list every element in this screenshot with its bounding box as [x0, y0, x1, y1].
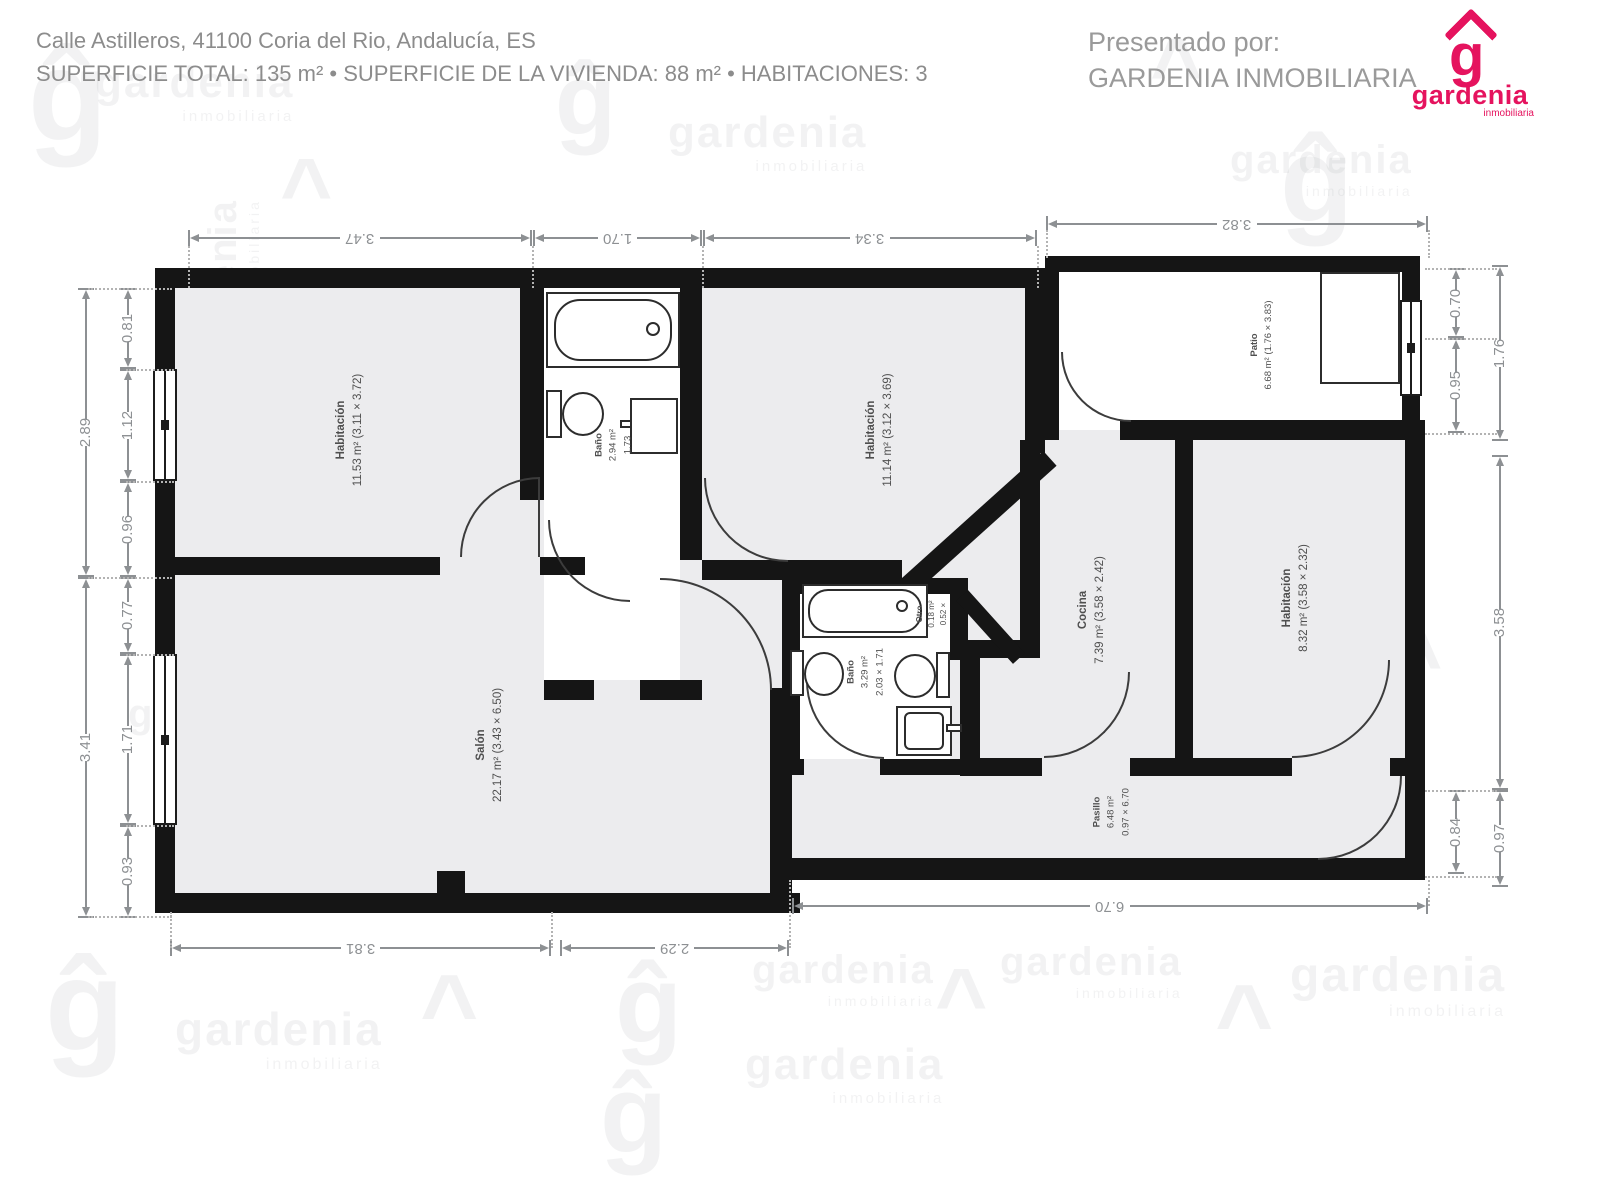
dimension-arrow	[1496, 267, 1504, 276]
dim-top-4: 3.82	[1046, 216, 1428, 232]
room-name: Patio	[1248, 301, 1262, 390]
dimension-line	[127, 836, 129, 858]
plan-detail	[1425, 433, 1497, 435]
wall-segment	[880, 759, 968, 775]
plan-detail	[532, 246, 534, 288]
toilet-icon	[546, 390, 562, 438]
sink-icon	[630, 398, 678, 454]
dimension-line	[1499, 636, 1501, 779]
dim-left-inner-5: 1.71	[120, 654, 136, 825]
dimension-label: 1.12	[115, 410, 142, 439]
wall-segment	[155, 893, 800, 913]
dimension-label: 3.82	[1217, 216, 1256, 233]
plan-detail	[88, 916, 172, 918]
wall-segment	[1405, 440, 1425, 785]
logo-g-icon: g	[1449, 22, 1484, 89]
window-icon	[153, 654, 177, 825]
wall-segment	[1025, 288, 1045, 453]
dimension-arrow	[1452, 327, 1460, 336]
dimension-arrow	[124, 907, 132, 916]
dimension-label: 0.97	[1487, 824, 1514, 853]
wall-segment	[1020, 440, 1040, 650]
dimension-line	[1499, 801, 1501, 825]
dimension-arrow	[562, 944, 571, 952]
dimension-arrow	[1496, 792, 1504, 801]
room-size: 2.03 × 1.71	[873, 648, 887, 696]
wall-segment	[1192, 758, 1292, 776]
dimension-line	[1455, 349, 1457, 372]
room-size: 6.48 m²	[1105, 788, 1119, 836]
dimension-arrow	[521, 234, 530, 242]
toilet-icon	[790, 650, 804, 696]
plan-detail	[88, 577, 172, 579]
room-label-otro: Otro0.18 m²0.52 ×	[914, 600, 950, 627]
dimension-arrow	[1496, 430, 1504, 439]
dimension-line	[127, 342, 129, 358]
dimension-line	[890, 237, 1026, 239]
listing-header: Calle Astilleros, 41100 Coria del Rio, A…	[36, 26, 928, 90]
room-size: 2.94 m²	[607, 429, 621, 461]
sink-basin	[904, 712, 944, 750]
dim-bottom-2: 2.29	[560, 940, 789, 956]
plan-detail	[789, 880, 791, 948]
room-label-cocina: Cocina7.39 m² (3.58 × 2.42)	[1075, 556, 1110, 664]
dimension-arrow	[124, 470, 132, 479]
plan-detail	[1428, 230, 1430, 258]
dimension-arrow	[124, 483, 132, 492]
watermark-roof: ^	[420, 975, 478, 1045]
wall-segment	[155, 557, 440, 575]
wall-segment	[790, 858, 1425, 880]
dimension-line	[1057, 223, 1217, 225]
dimension-label: 3.81	[341, 940, 380, 957]
dimension-arrow	[540, 944, 549, 952]
wall-segment	[1045, 420, 1059, 440]
dimension-line	[1499, 466, 1501, 609]
dimension-line	[127, 753, 129, 814]
watermark-roof: ^	[935, 970, 988, 1033]
dimension-label: 3.41	[73, 733, 100, 762]
plan-detail	[188, 246, 190, 288]
sink-faucet	[946, 724, 962, 732]
room-name: Baño	[593, 429, 607, 461]
dim-left-inner-4: 0.77	[120, 577, 136, 654]
watermark-word: gardeniainmobiliaria	[1290, 948, 1506, 1021]
dim-bottom-3: 6.70	[792, 898, 1428, 914]
wall-segment	[1405, 785, 1425, 880]
dimension-arrow	[124, 358, 132, 367]
dimension-arrow	[1452, 422, 1460, 431]
dim-right-outer-2: 3.58	[1492, 455, 1508, 790]
dimension-arrow	[124, 579, 132, 588]
dimension-line	[571, 947, 655, 949]
dimension-arrow	[82, 907, 90, 916]
presented-by-label: Presentado por:	[1088, 24, 1417, 60]
bidet-bowl	[894, 654, 936, 698]
dimension-line	[1499, 276, 1501, 340]
dim-right-inner-2: 0.95	[1448, 338, 1464, 433]
room-label-bano-1: Baño2.94 m²1.73	[593, 429, 636, 461]
dim-right-inner-1: 0.70	[1448, 268, 1464, 338]
wall-segment	[437, 871, 465, 895]
bathtub-drain	[646, 322, 660, 336]
wall-segment	[1045, 256, 1420, 272]
dimension-line	[1455, 846, 1457, 864]
room-floor	[790, 770, 1040, 870]
gardenia-logo: g gardenia inmobiliaria	[1402, 4, 1538, 122]
room-size: 11.53 m² (3.11 × 3.72)	[350, 374, 367, 486]
room-name: Salón	[473, 688, 490, 802]
dimension-arrow	[1452, 792, 1460, 801]
dimension-line	[714, 237, 850, 239]
dimension-arrow	[82, 290, 90, 299]
plan-detail	[1425, 268, 1497, 270]
watermark-word: gardeniainmobiliaria	[1000, 940, 1183, 1001]
dimension-line	[1499, 852, 1501, 876]
plan-detail	[126, 481, 174, 483]
patio-structure	[1320, 272, 1400, 384]
room-size: 3.29 m²	[859, 648, 873, 696]
dimension-arrow	[1496, 457, 1504, 466]
dimension-line	[380, 947, 540, 949]
plan-detail	[1428, 880, 1430, 906]
dimension-label: 0.81	[115, 314, 142, 343]
plan-detail	[1425, 876, 1497, 878]
room-size: 0.97 × 6.70	[1119, 788, 1133, 836]
dimension-arrow	[1496, 876, 1504, 885]
room-name: Habitación	[333, 374, 350, 486]
dimension-arrow	[1452, 270, 1460, 279]
dimension-line	[127, 629, 129, 643]
dimension-line	[1257, 223, 1417, 225]
dimension-line	[637, 237, 691, 239]
dimension-arrow	[1417, 220, 1426, 228]
dimension-line	[694, 947, 778, 949]
listing-address: Calle Astilleros, 41100 Coria del Rio, A…	[36, 26, 928, 57]
wall-segment	[1130, 758, 1192, 776]
bathtub-drain	[896, 600, 908, 612]
dimension-label: 0.84	[1443, 817, 1470, 846]
watermark-word: gardeniainmobiliaria	[745, 1040, 944, 1107]
agency-name: GARDENIA INMOBILIARIA	[1088, 60, 1417, 96]
watermark-word: gardeniainmobiliaria	[1230, 138, 1413, 199]
watermark-word: gardeniainmobiliaria	[668, 108, 867, 175]
watermark-word: gardeniainmobiliaria	[752, 948, 935, 1009]
dimension-arrow	[1452, 340, 1460, 349]
window-icon	[1400, 300, 1422, 396]
room-name: Otro	[914, 600, 926, 627]
room-name: Habitación	[1279, 544, 1296, 652]
dimension-line	[127, 492, 129, 516]
dimension-arrow	[1048, 220, 1057, 228]
wall-segment	[544, 680, 594, 700]
dim-right-inner-3: 0.84	[1448, 790, 1464, 874]
wall-segment	[950, 578, 968, 660]
wall-segment	[960, 640, 980, 775]
room-name: Baño	[845, 648, 859, 696]
dimension-arrow	[124, 814, 132, 823]
dimension-arrow	[82, 579, 90, 588]
dim-top-3: 3.34	[703, 230, 1037, 246]
dimension-label: 0.96	[115, 514, 142, 543]
room-name: Cocina	[1075, 556, 1092, 664]
listing-summary: SUPERFICIE TOTAL: 135 m² • SUPERFICIE DE…	[36, 57, 928, 90]
dimension-arrow	[691, 234, 700, 242]
dimension-arrow	[124, 566, 132, 575]
wall-segment	[960, 758, 1042, 776]
dim-left-inner-2: 1.12	[120, 369, 136, 481]
dimension-arrow	[82, 566, 90, 575]
dimension-line	[181, 947, 341, 949]
dimension-arrow	[124, 290, 132, 299]
dim-right-outer-1: 1.76	[1492, 265, 1508, 441]
room-label-habitacion-3: Habitación8.32 m² (3.58 × 2.32)	[1279, 544, 1314, 652]
dimension-label: 3.47	[340, 230, 379, 247]
plan-detail	[1425, 338, 1497, 340]
watermark-word: gardeniainmobiliaria	[175, 1002, 383, 1074]
dim-right-outer-3: 0.97	[1492, 790, 1508, 887]
plan-detail	[126, 369, 174, 371]
wall-segment	[1390, 758, 1425, 776]
plan-detail	[126, 654, 174, 656]
dimension-line	[1499, 367, 1501, 431]
plan-detail	[702, 246, 704, 288]
room-label-habitacion-1: Habitación11.53 m² (3.11 × 3.72)	[333, 374, 368, 486]
wall-segment	[1045, 256, 1059, 426]
wall-segment	[155, 268, 1045, 288]
dimension-arrow	[1026, 234, 1035, 242]
sink-faucet	[620, 420, 632, 428]
room-name: Habitación	[863, 373, 880, 486]
dimension-label: 0.95	[1443, 371, 1470, 400]
plan-detail	[126, 825, 174, 827]
dimension-label: 0.77	[115, 601, 142, 630]
dimension-line	[127, 665, 129, 726]
dimension-arrow	[1496, 779, 1504, 788]
watermark-glyph: ĝ	[600, 1060, 667, 1170]
dimension-line	[544, 237, 598, 239]
dimension-arrow	[124, 643, 132, 652]
dimension-label: 0.70	[1443, 288, 1470, 317]
room-label-patio: Patio6.68 m² (1.76 × 3.83)	[1248, 301, 1277, 390]
wall-segment	[702, 560, 902, 580]
wall-segment	[1120, 420, 1425, 440]
dimension-line	[85, 588, 87, 734]
dimension-arrow	[1452, 863, 1460, 872]
dimension-arrow	[794, 902, 803, 910]
dimension-arrow	[1417, 902, 1426, 910]
dimension-line	[380, 237, 521, 239]
dimension-label: 3.34	[850, 230, 889, 247]
room-size: 22.17 m² (3.43 × 6.50)	[490, 688, 507, 802]
dim-top-1: 3.47	[188, 230, 532, 246]
dimension-arrow	[124, 371, 132, 380]
dimension-line	[1130, 905, 1417, 907]
dimension-line	[85, 299, 87, 419]
plan-detail	[161, 735, 169, 745]
dimension-arrow	[705, 234, 714, 242]
dimension-line	[85, 761, 87, 907]
wall-segment	[782, 759, 804, 775]
bidet-icon	[936, 652, 950, 698]
dimension-arrow	[778, 944, 787, 952]
dim-left-inner-1: 0.81	[120, 288, 136, 369]
dimension-label: 1.71	[115, 725, 142, 754]
plan-detail	[1425, 790, 1497, 792]
dimension-line	[127, 885, 129, 907]
dimension-label: 2.89	[73, 418, 100, 447]
dimension-line	[1455, 399, 1457, 422]
plan-detail	[1046, 230, 1048, 258]
dimension-line	[803, 905, 1090, 907]
room-label-pasillo: Pasillo6.48 m²0.97 × 6.70	[1091, 788, 1134, 836]
room-name: Pasillo	[1091, 788, 1105, 836]
room-size: 0.18 m²	[926, 600, 938, 627]
wall-segment	[1402, 256, 1420, 304]
watermark-roof: ^	[280, 160, 333, 223]
dim-top-2: 1.70	[533, 230, 702, 246]
dim-bottom-1: 3.81	[170, 940, 551, 956]
room-size: 11.14 m² (3.12 × 3.69)	[880, 373, 897, 486]
dimension-arrow	[190, 234, 199, 242]
dimension-arrow	[124, 827, 132, 836]
dimension-arrow	[172, 944, 181, 952]
logo-wordmark: gardenia	[1402, 80, 1538, 111]
room-size: 6.68 m² (1.76 × 3.83)	[1262, 301, 1276, 390]
dimension-line	[127, 439, 129, 471]
dimension-line	[127, 543, 129, 567]
plan-detail	[1407, 343, 1415, 353]
floorplan-page: ĝgardeniainmobiliariaĝgardeniainmobiliar…	[0, 0, 1600, 1200]
window-icon	[153, 369, 177, 481]
dimension-line	[1455, 801, 1457, 819]
plan-detail	[1037, 246, 1039, 288]
room-label-salon: Salón22.17 m² (3.43 × 6.50)	[473, 688, 508, 802]
dimension-line	[199, 237, 340, 239]
dimension-label: 1.76	[1487, 338, 1514, 367]
logo-tagline: inmobiliaria	[1483, 108, 1534, 119]
room-size: 1.73	[621, 429, 635, 461]
dim-left-inner-3: 0.96	[120, 481, 136, 577]
watermark-glyph: ĝ	[45, 940, 124, 1070]
dimension-line	[127, 299, 129, 315]
dimension-arrow	[535, 234, 544, 242]
wall-segment	[1175, 440, 1193, 760]
dimension-label: 1.70	[598, 230, 637, 247]
dimension-arrow	[124, 656, 132, 665]
plan-detail	[88, 288, 172, 290]
toilet-bowl	[804, 652, 844, 696]
wall-segment	[520, 288, 544, 500]
presented-by-block: Presentado por: GARDENIA INMOBILIARIA	[1088, 24, 1417, 97]
room-size: 8.32 m² (3.58 × 2.32)	[1296, 544, 1313, 652]
room-size: 0.52 ×	[938, 600, 950, 627]
dimension-label: 0.93	[115, 857, 142, 886]
dim-left-outer-2: 3.41	[78, 577, 94, 918]
dimension-line	[127, 588, 129, 602]
dimension-label: 6.70	[1090, 898, 1129, 915]
room-size: 7.39 m² (3.58 × 2.42)	[1092, 556, 1109, 664]
dimension-label: 3.58	[1487, 608, 1514, 637]
dim-left-outer-1: 2.89	[78, 288, 94, 577]
room-label-habitacion-2: Habitación11.14 m² (3.12 × 3.69)	[863, 373, 898, 486]
dimension-line	[85, 446, 87, 566]
plan-detail	[551, 912, 553, 948]
watermark-glyph: ĝ	[615, 950, 682, 1060]
dim-left-inner-6: 0.93	[120, 825, 136, 918]
room-label-bano-2: Baño3.29 m²2.03 × 1.71	[845, 648, 888, 696]
dimension-line	[127, 380, 129, 412]
wall-segment	[680, 288, 702, 560]
plan-detail	[161, 420, 169, 430]
watermark-roof: ^	[1215, 985, 1273, 1055]
dimension-label: 2.29	[655, 940, 694, 957]
